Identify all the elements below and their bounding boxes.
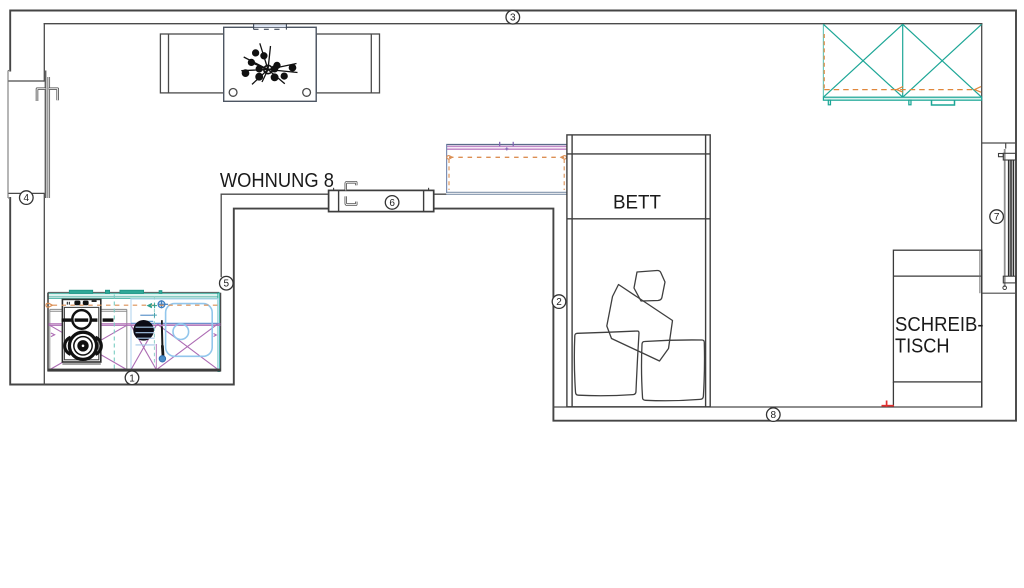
svg-text:3: 3 xyxy=(510,13,516,24)
svg-text:4: 4 xyxy=(24,193,30,204)
svg-text:6: 6 xyxy=(389,198,395,209)
svg-text:BETT: BETT xyxy=(613,192,661,214)
svg-text:WOHNUNG 8: WOHNUNG 8 xyxy=(220,170,334,192)
svg-text:7: 7 xyxy=(994,212,1000,223)
svg-text:5: 5 xyxy=(224,279,230,290)
svg-text:8: 8 xyxy=(771,410,777,421)
svg-text:SCHREIB-: SCHREIB- xyxy=(895,314,984,336)
svg-text:2: 2 xyxy=(556,297,562,308)
svg-text:1: 1 xyxy=(129,373,135,384)
svg-text:TISCH: TISCH xyxy=(895,336,950,358)
